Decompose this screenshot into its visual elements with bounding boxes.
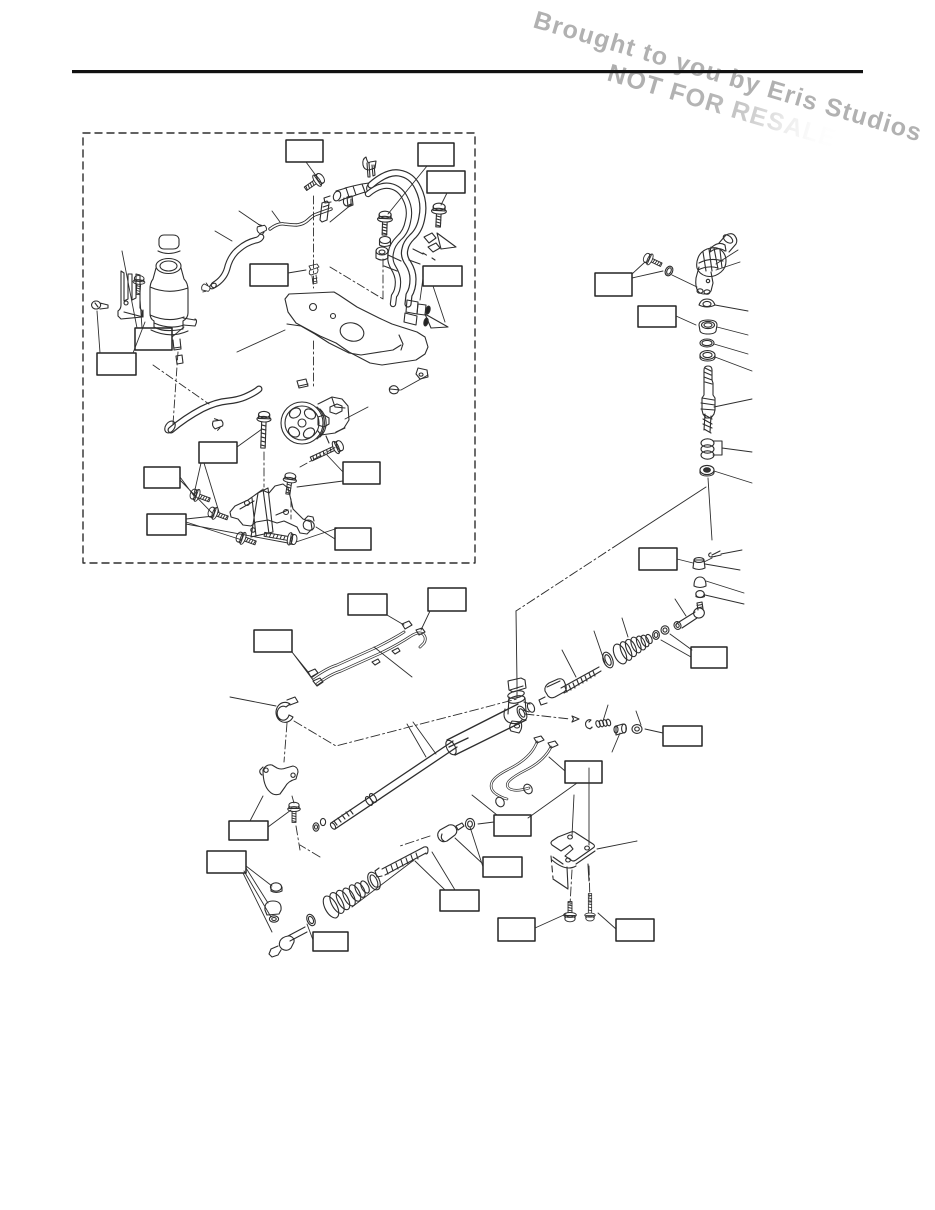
svg-text:Brought to you by Eris Studios: Brought to you by Eris Studios: [530, 6, 925, 148]
